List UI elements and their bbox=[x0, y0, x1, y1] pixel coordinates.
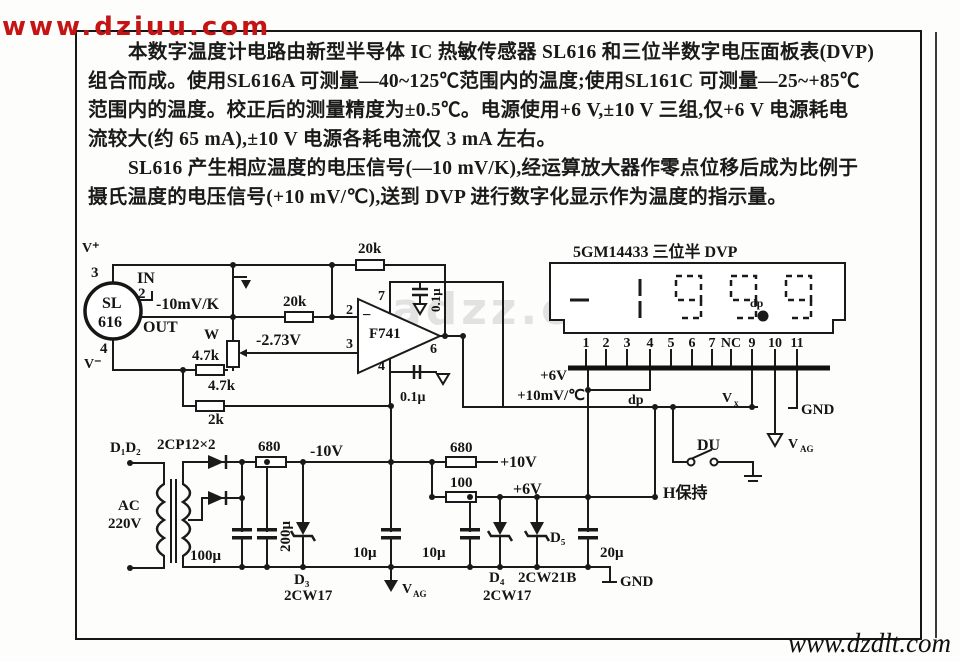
zener-diodes bbox=[291, 522, 549, 592]
label-200u: 200μ bbox=[278, 521, 294, 553]
label-d3-type: 2CW17 bbox=[284, 588, 333, 604]
v-minus-arrow-top bbox=[414, 304, 426, 314]
scanned-page: adzz.com 本数字温度计电路由新型半导体 IC 热敏传感器 SL616 和… bbox=[0, 0, 960, 661]
decimal-point-dot bbox=[758, 311, 769, 322]
label-cap-bottom: 0.1μ bbox=[400, 390, 426, 405]
dvp-pin-number: 6 bbox=[689, 336, 696, 351]
label-out: OUT bbox=[143, 319, 178, 336]
dvp-box bbox=[550, 263, 845, 333]
dvp-module bbox=[550, 263, 845, 446]
label-offset-voltage: -2.73V bbox=[256, 332, 301, 349]
label-opamp-pin4: 4 bbox=[378, 359, 385, 374]
label-gnd-bottom: GND bbox=[620, 574, 654, 590]
label-d5-type: 2CW21B bbox=[518, 570, 576, 586]
label-neg10v: -10V bbox=[310, 443, 343, 460]
pot-wiper-arrow bbox=[239, 349, 247, 357]
label-10u-right: 10μ bbox=[422, 545, 446, 561]
transformer-core bbox=[171, 480, 176, 562]
dvp-pin-number: 9 bbox=[749, 336, 756, 351]
dvp-pin-number: 1 bbox=[583, 336, 590, 351]
dvp-title: 5GM14433 三位半 DVP bbox=[573, 242, 738, 261]
label-100: 100 bbox=[450, 475, 473, 491]
label-cap-top: 0.1μ bbox=[428, 288, 443, 312]
label-20u: 20μ bbox=[600, 545, 624, 561]
label-pos10v: +10V bbox=[500, 454, 537, 471]
label-616: 616 bbox=[98, 314, 122, 331]
bottom-right-watermark: www.dzdlt.com bbox=[788, 628, 951, 659]
cap-200u bbox=[257, 528, 277, 532]
dvp-pin-number: NC bbox=[721, 336, 741, 351]
label-signal-out: -10mV/K bbox=[156, 296, 220, 313]
dvp-pin-number: 2 bbox=[603, 336, 610, 351]
label-100u: 100μ bbox=[190, 548, 222, 564]
cap-10u-left bbox=[381, 528, 401, 532]
dvp-pin-number: 7 bbox=[709, 336, 716, 351]
label-pot-name: W bbox=[204, 327, 219, 343]
label-vag-bottom: V bbox=[402, 582, 412, 597]
potentiometer-w bbox=[227, 341, 239, 367]
resistor-680-left bbox=[256, 457, 286, 467]
label-680-left: 680 bbox=[258, 439, 281, 455]
dvp-pin-number: 11 bbox=[790, 336, 803, 351]
label-pos6v: +6V bbox=[513, 481, 542, 498]
label-opamp-minus: − bbox=[362, 307, 371, 324]
dvp-pin-number: 10 bbox=[768, 336, 782, 351]
switch-contact bbox=[688, 459, 695, 466]
label-dp: dp bbox=[628, 393, 644, 408]
label-d3: D₃ bbox=[294, 572, 310, 588]
label-v-plus: V⁺ bbox=[82, 241, 100, 256]
top-left-watermark: www.dziuu.com bbox=[2, 12, 271, 42]
cap-100u bbox=[232, 528, 252, 532]
label-r-bottom: 2k bbox=[208, 412, 225, 428]
label-vag-bottom-sub: AG bbox=[413, 589, 427, 599]
label-opamp-pin2: 2 bbox=[346, 303, 353, 318]
label-in: IN bbox=[137, 270, 155, 287]
resistor-4k7 bbox=[196, 365, 224, 375]
label-r-feedback: 20k bbox=[358, 241, 382, 257]
label-vag-right-sub: AG bbox=[800, 444, 814, 454]
label-r-series: 20k bbox=[283, 294, 307, 310]
resistor-20k-series bbox=[285, 312, 313, 322]
vag-terminal-triangle bbox=[768, 434, 782, 446]
circuit-schematic: V⁺ 3 IN 2 -10mV/K OUT SL 616 4 V⁻ 20k 20… bbox=[0, 0, 960, 661]
dvp-pin-stubs bbox=[586, 350, 797, 368]
diode-d1 bbox=[208, 455, 224, 469]
label-dp-display: dp bbox=[750, 296, 764, 310]
cap-10u-right bbox=[460, 528, 480, 532]
diode-d2 bbox=[208, 491, 224, 505]
vag-ground-triangle bbox=[384, 580, 398, 592]
label-pot-value: 4.7k bbox=[192, 348, 220, 364]
label-vag-right: V bbox=[788, 437, 798, 452]
primary-coil bbox=[157, 484, 164, 556]
label-pin2: 2 bbox=[138, 286, 146, 302]
label-r-mid: 4.7k bbox=[208, 378, 236, 394]
transformer bbox=[157, 480, 190, 562]
label-pin4: 4 bbox=[100, 341, 108, 357]
label-hold: H保持 bbox=[663, 483, 707, 502]
label-opamp-pin6: 6 bbox=[430, 342, 437, 357]
resistor-20k-feedback bbox=[356, 260, 384, 270]
v-minus-arrow-bottom bbox=[437, 374, 449, 384]
label-signal-in: +10mV/℃ bbox=[517, 388, 585, 404]
label-d4-type: 2CW17 bbox=[483, 588, 532, 604]
resistor-2k bbox=[196, 401, 224, 411]
dvp-pin-number: 5 bbox=[668, 336, 675, 351]
label-opamp-pin3: 3 bbox=[346, 337, 353, 352]
switch-contact bbox=[711, 459, 718, 466]
label-680-right: 680 bbox=[450, 440, 473, 456]
label-rectifier: 2CP12×2 bbox=[157, 437, 216, 453]
resistor-680-right bbox=[446, 457, 476, 467]
du-switch bbox=[688, 459, 718, 466]
label-gnd-right: GND bbox=[801, 402, 835, 418]
label-10u-left: 10μ bbox=[353, 545, 377, 561]
dvp-pin-number: 4 bbox=[647, 336, 654, 351]
cap-20u bbox=[578, 528, 598, 532]
label-pin3: 3 bbox=[91, 265, 99, 281]
label-opamp-name: F741 bbox=[369, 326, 401, 342]
dvp-pin-number: 3 bbox=[624, 336, 631, 351]
rail-arrow bbox=[241, 280, 251, 289]
label-220v: 220V bbox=[108, 516, 142, 532]
label-du: DU bbox=[697, 437, 721, 454]
label-plus6v-dvp: +6V bbox=[540, 368, 567, 384]
label-d4: D₄ bbox=[489, 570, 505, 586]
label-ac: AC bbox=[118, 498, 140, 514]
label-vx-sub: x bbox=[734, 398, 739, 408]
label-d5: D₅ bbox=[550, 530, 566, 546]
label-v-minus: V⁻ bbox=[84, 357, 102, 372]
label-d1d2: D₁D₂ bbox=[110, 440, 141, 456]
label-opamp-pin7: 7 bbox=[378, 289, 385, 304]
label-sl: SL bbox=[102, 295, 122, 312]
label-vx: V bbox=[722, 391, 732, 406]
cap-0u1-top bbox=[412, 289, 428, 295]
